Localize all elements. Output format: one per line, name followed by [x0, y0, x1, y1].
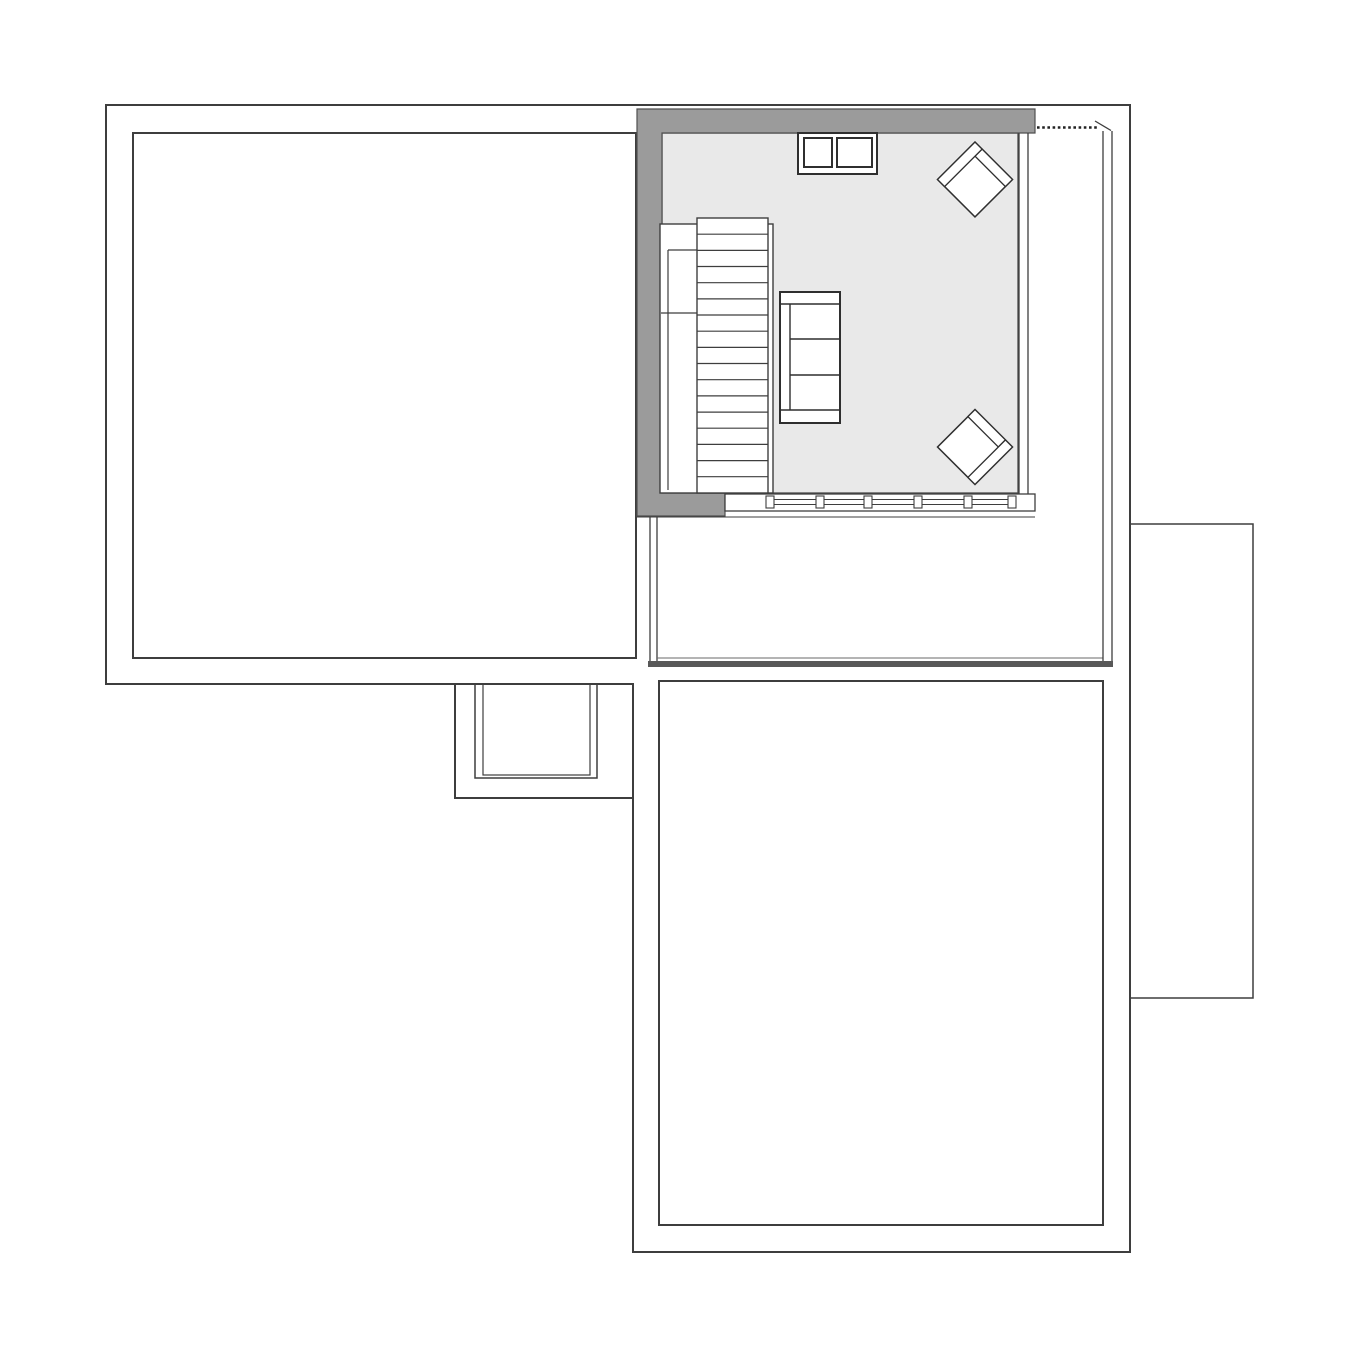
lower-room-outline	[659, 681, 1103, 1225]
chimney-flue-left	[804, 138, 832, 167]
window-mullion-2	[816, 496, 824, 508]
window-mullion-3	[864, 496, 872, 508]
sofa-outline	[780, 292, 840, 423]
staircase-treads-box	[697, 218, 768, 493]
floor-plan	[0, 0, 1360, 1360]
window-mullion-4	[914, 496, 922, 508]
floor-plan-page	[0, 0, 1360, 1360]
chimney-flue-right	[837, 138, 872, 167]
left-room-outline	[133, 133, 636, 658]
terrace-bottom-thick-edge	[648, 661, 1113, 667]
porch-inner-rect-outer	[475, 684, 597, 778]
right-annex-outline	[1130, 524, 1253, 998]
window-mullion-1	[766, 496, 774, 508]
eave-diagonal-tick	[1095, 121, 1111, 131]
window-mullion-6	[1008, 496, 1016, 508]
window-mullion-5	[964, 496, 972, 508]
